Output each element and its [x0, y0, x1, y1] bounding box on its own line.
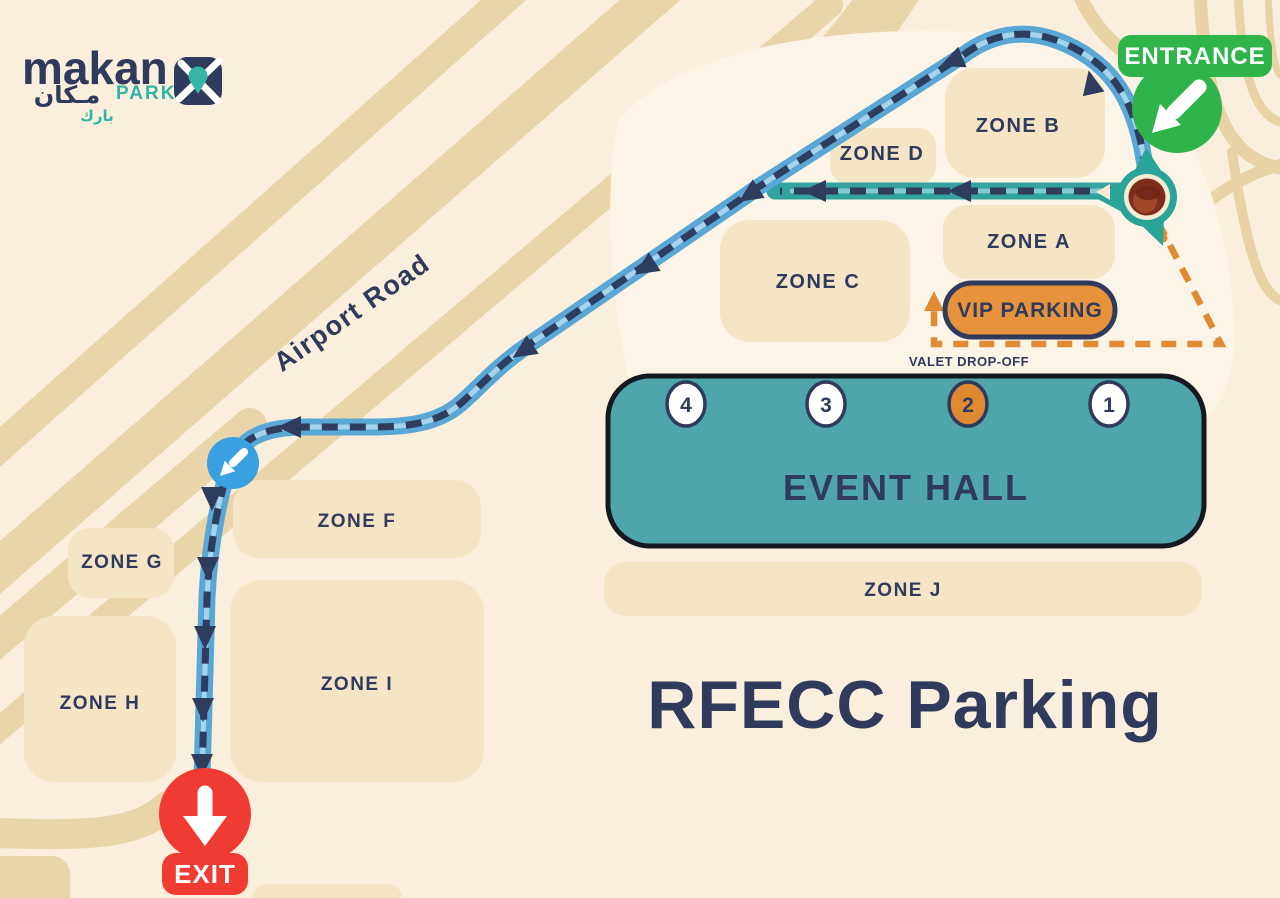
page-title: RFECC Parking [647, 667, 1163, 743]
event-hall: EVENT HALL 4 3 2 1 [608, 376, 1204, 546]
turn-marker [207, 437, 259, 489]
zone-d-label: ZONE D [840, 143, 925, 165]
gate-1: 1 [1090, 382, 1128, 426]
zone-block-a: ZONE A [943, 205, 1115, 279]
zone-c-label: ZONE C [776, 271, 861, 293]
zone-block-g: ZONE G [68, 528, 174, 598]
tan-patch [252, 884, 402, 898]
brand-mark-icon [174, 57, 222, 105]
roundabout-island-detail [1136, 186, 1160, 200]
gate-3: 3 [807, 382, 845, 426]
gate-3-number: 3 [820, 394, 832, 417]
map-canvas: ZONE B ZONE D ZONE A ZONE C ZONE F ZONE … [0, 0, 1280, 898]
vip-parking: VIP PARKING [945, 283, 1115, 337]
zone-block-j: ZONE J [604, 562, 1202, 616]
zone-block-f: ZONE F [233, 480, 481, 558]
brand-name-arabic: مـكان [34, 82, 101, 109]
zone-block-b: ZONE B [945, 68, 1105, 178]
tan-patch [0, 856, 70, 898]
event-hall-label: EVENT HALL [783, 467, 1029, 508]
gate-1-number: 1 [1103, 394, 1115, 417]
zone-f-label: ZONE F [318, 511, 397, 532]
zone-h-label: ZONE H [60, 693, 141, 714]
zone-i-label: ZONE I [321, 674, 393, 695]
parking-map: ZONE B ZONE D ZONE A ZONE C ZONE F ZONE … [0, 0, 1280, 898]
gate-2: 2 [949, 382, 987, 426]
gate-2-number: 2 [962, 394, 974, 417]
zone-block-h: ZONE H [24, 616, 176, 782]
exit: EXIT [159, 768, 251, 895]
entrance-label: ENTRANCE [1124, 43, 1265, 70]
vip-parking-label: VIP PARKING [957, 299, 1103, 322]
zone-block-c: ZONE C [720, 220, 910, 342]
gate-4: 4 [667, 382, 705, 426]
brand-park: PARK [116, 83, 176, 104]
zone-g-label: ZONE G [81, 552, 163, 573]
zone-a-label: ZONE A [987, 231, 1071, 253]
gate-4-number: 4 [680, 394, 692, 417]
valet-dropoff-label: VALET DROP-OFF [909, 354, 1029, 369]
zone-j-label: ZONE J [864, 580, 942, 601]
brand-park-arabic: بارك [80, 108, 114, 125]
zone-b-label: ZONE B [976, 115, 1061, 137]
zone-block-i: ZONE I [230, 580, 484, 782]
exit-label: EXIT [174, 859, 236, 889]
